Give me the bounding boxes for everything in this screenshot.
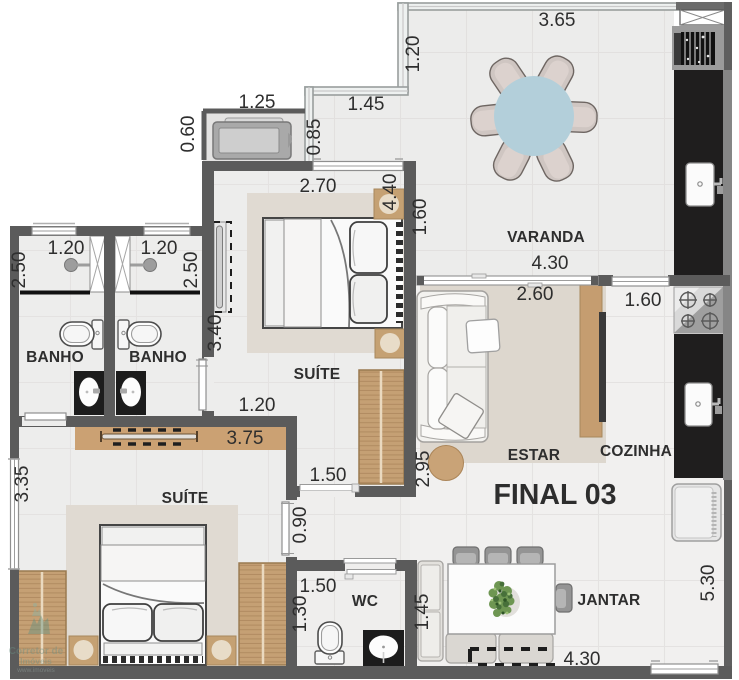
svg-text:2.50: 2.50 [9, 252, 30, 289]
svg-text:1.60: 1.60 [625, 290, 662, 311]
svg-text:1.20: 1.20 [48, 238, 85, 259]
svg-text:0.60: 0.60 [178, 116, 199, 153]
svg-text:SUÍTE: SUÍTE [162, 490, 209, 507]
svg-text:1.60: 1.60 [410, 199, 431, 236]
svg-text:3.40: 3.40 [205, 315, 226, 352]
svg-text:BANHO: BANHO [26, 349, 84, 366]
svg-text:ESTAR: ESTAR [508, 447, 560, 464]
svg-text:COZINHA: COZINHA [600, 443, 672, 460]
svg-text:1.45: 1.45 [412, 594, 433, 631]
svg-text:5.30: 5.30 [698, 565, 719, 602]
svg-text:SUÍTE: SUÍTE [294, 366, 341, 383]
svg-text:WC: WC [352, 593, 378, 610]
svg-text:VARANDA: VARANDA [507, 229, 585, 246]
svg-text:1.20: 1.20 [403, 36, 424, 73]
svg-text:4.30: 4.30 [532, 253, 569, 274]
svg-text:1.50: 1.50 [300, 576, 337, 597]
svg-text:1.30: 1.30 [290, 596, 311, 633]
svg-text:2.60: 2.60 [517, 284, 554, 305]
svg-text:1.50: 1.50 [310, 465, 347, 486]
svg-text:1.20: 1.20 [141, 238, 178, 259]
svg-text:FINAL 03: FINAL 03 [493, 479, 616, 511]
svg-text:0.85: 0.85 [304, 119, 325, 156]
svg-text:1.25: 1.25 [239, 92, 276, 113]
svg-text:4.40: 4.40 [380, 174, 401, 211]
svg-text:JANTAR: JANTAR [578, 592, 641, 609]
svg-text:4.30: 4.30 [564, 649, 601, 670]
svg-text:2.50: 2.50 [181, 252, 202, 289]
svg-text:www.imoveis: www.imoveis [16, 667, 55, 674]
svg-text:3.35: 3.35 [12, 466, 33, 503]
svg-text:BANHO: BANHO [129, 349, 187, 366]
svg-text:Imóveis: Imóveis [20, 656, 52, 666]
svg-text:3.65: 3.65 [539, 10, 576, 31]
svg-text:1.20: 1.20 [239, 395, 276, 416]
svg-text:3.75: 3.75 [227, 428, 264, 449]
svg-text:1.45: 1.45 [348, 94, 385, 115]
svg-text:2.70: 2.70 [300, 176, 337, 197]
svg-text:0.90: 0.90 [290, 507, 311, 544]
svg-text:2.95: 2.95 [413, 451, 434, 488]
